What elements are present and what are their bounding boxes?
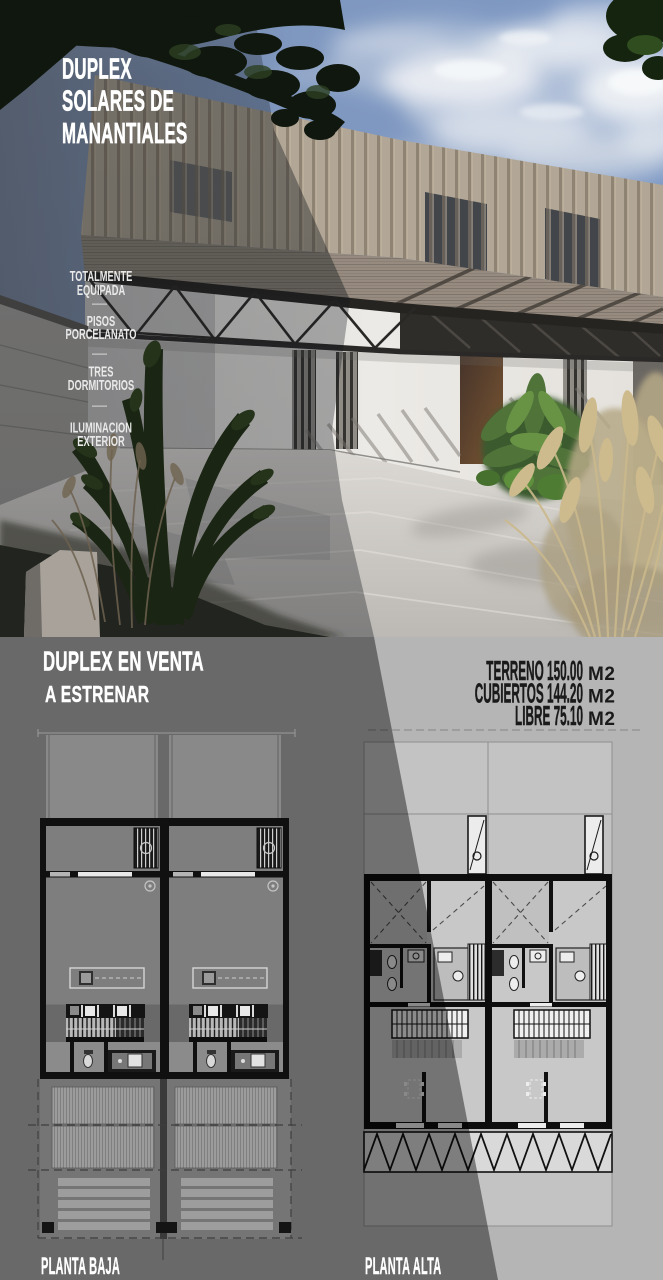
svg-text:PLANTA ALTA: PLANTA ALTA (365, 1252, 441, 1279)
svg-text:MANANTIALES: MANANTIALES (62, 119, 188, 151)
svg-text:SOLARES DE: SOLARES DE (62, 86, 174, 118)
svg-text:DUPLEX EN VENTA: DUPLEX EN VENTA (43, 645, 204, 677)
svg-text:EXTERIOR: EXTERIOR (77, 433, 125, 450)
svg-text:M2: M2 (588, 664, 615, 685)
svg-text:PLANTA BAJA: PLANTA BAJA (41, 1252, 120, 1279)
svg-text:DUPLEX: DUPLEX (62, 54, 132, 86)
svg-text:PORCELANATO: PORCELANATO (66, 326, 137, 343)
svg-text:A ESTRENAR: A ESTRENAR (45, 682, 149, 708)
svg-text:M2: M2 (588, 687, 615, 708)
svg-text:LIBRE 75.10: LIBRE 75.10 (515, 700, 583, 731)
svg-text:EQUIPADA: EQUIPADA (77, 282, 125, 299)
svg-text:DORMITORIOS: DORMITORIOS (68, 377, 134, 394)
svg-text:M2: M2 (588, 709, 615, 730)
